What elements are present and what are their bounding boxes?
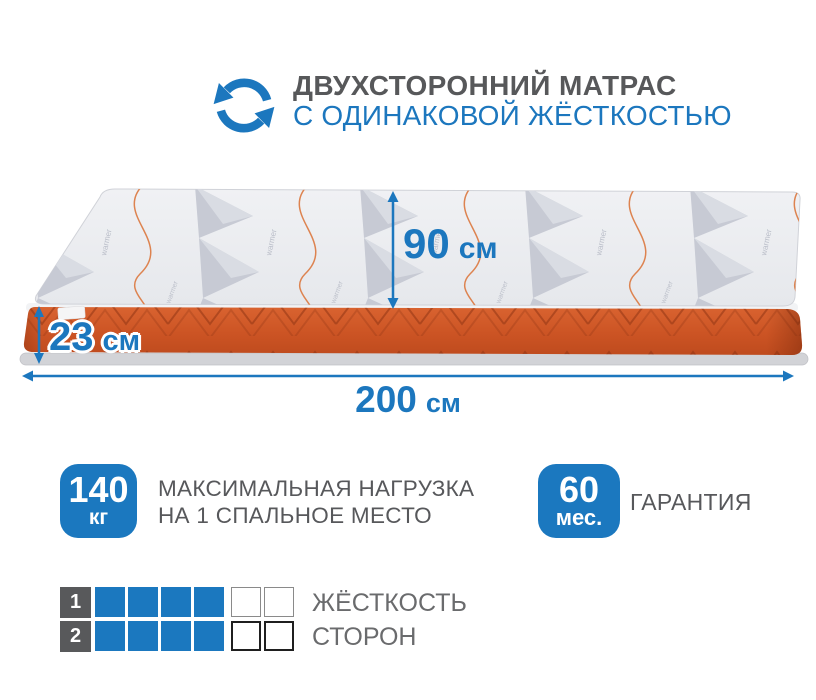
warranty-unit: мес. bbox=[556, 507, 603, 529]
hardness-row: 2 bbox=[60, 621, 297, 652]
max-load-unit: кг bbox=[89, 507, 108, 529]
hardness-filled-square bbox=[95, 621, 125, 651]
hardness-label-line1: ЖЁСТКОСТЬ bbox=[312, 586, 467, 620]
length-value: 200 bbox=[355, 381, 417, 418]
length-dimension-label: 200 см bbox=[323, 381, 493, 418]
hardness-row: 1 bbox=[60, 587, 297, 618]
hardness-empty-square bbox=[231, 621, 261, 651]
thickness-value: 23 bbox=[49, 317, 94, 357]
hardness-filled-square bbox=[161, 587, 191, 617]
warranty-label: ГАРАНТИЯ bbox=[630, 489, 752, 516]
hardness-filled-square bbox=[194, 587, 224, 617]
hardness-empty-square bbox=[264, 587, 294, 617]
hardness-filled-square bbox=[194, 621, 224, 651]
hardness-label-line2: СТОРОН bbox=[312, 620, 467, 654]
mattress-infographic: ДВУХСТОРОННИЙ МАТРАС С ОДИНАКОВОЙ ЖЁСТКО… bbox=[0, 0, 816, 700]
hardness-filled-square bbox=[95, 587, 125, 617]
hardness-empty-square bbox=[264, 621, 294, 651]
height-dimension-label: 90 см bbox=[403, 223, 498, 265]
thickness-dimension-label: 23 см bbox=[49, 317, 140, 357]
warranty-value: 60 bbox=[559, 473, 599, 507]
max-load-description-line1: МАКСИМАЛЬНАЯ НАГРУЗКА bbox=[158, 475, 474, 502]
max-load-description-line2: НА 1 СПАЛЬНОЕ МЕСТО bbox=[158, 502, 474, 529]
hardness-side-number: 1 bbox=[60, 587, 91, 618]
hardness-filled-square bbox=[128, 587, 158, 617]
hardness-rows: 12 bbox=[60, 587, 297, 655]
height-value: 90 bbox=[403, 223, 450, 265]
thickness-unit: см bbox=[103, 327, 141, 356]
max-load-description: МАКСИМАЛЬНАЯ НАГРУЗКА НА 1 СПАЛЬНОЕ МЕСТ… bbox=[158, 475, 474, 529]
max-load-badge: 140 кг bbox=[60, 464, 137, 538]
hardness-side-number: 2 bbox=[60, 621, 91, 652]
max-load-value: 140 bbox=[68, 473, 128, 507]
height-unit: см bbox=[459, 234, 498, 264]
hardness-label: ЖЁСТКОСТЬ СТОРОН bbox=[312, 586, 467, 654]
length-unit: см bbox=[426, 390, 461, 417]
hardness-filled-square bbox=[128, 621, 158, 651]
hardness-filled-square bbox=[161, 621, 191, 651]
hardness-empty-square bbox=[231, 587, 261, 617]
warranty-badge: 60 мес. bbox=[538, 464, 620, 538]
